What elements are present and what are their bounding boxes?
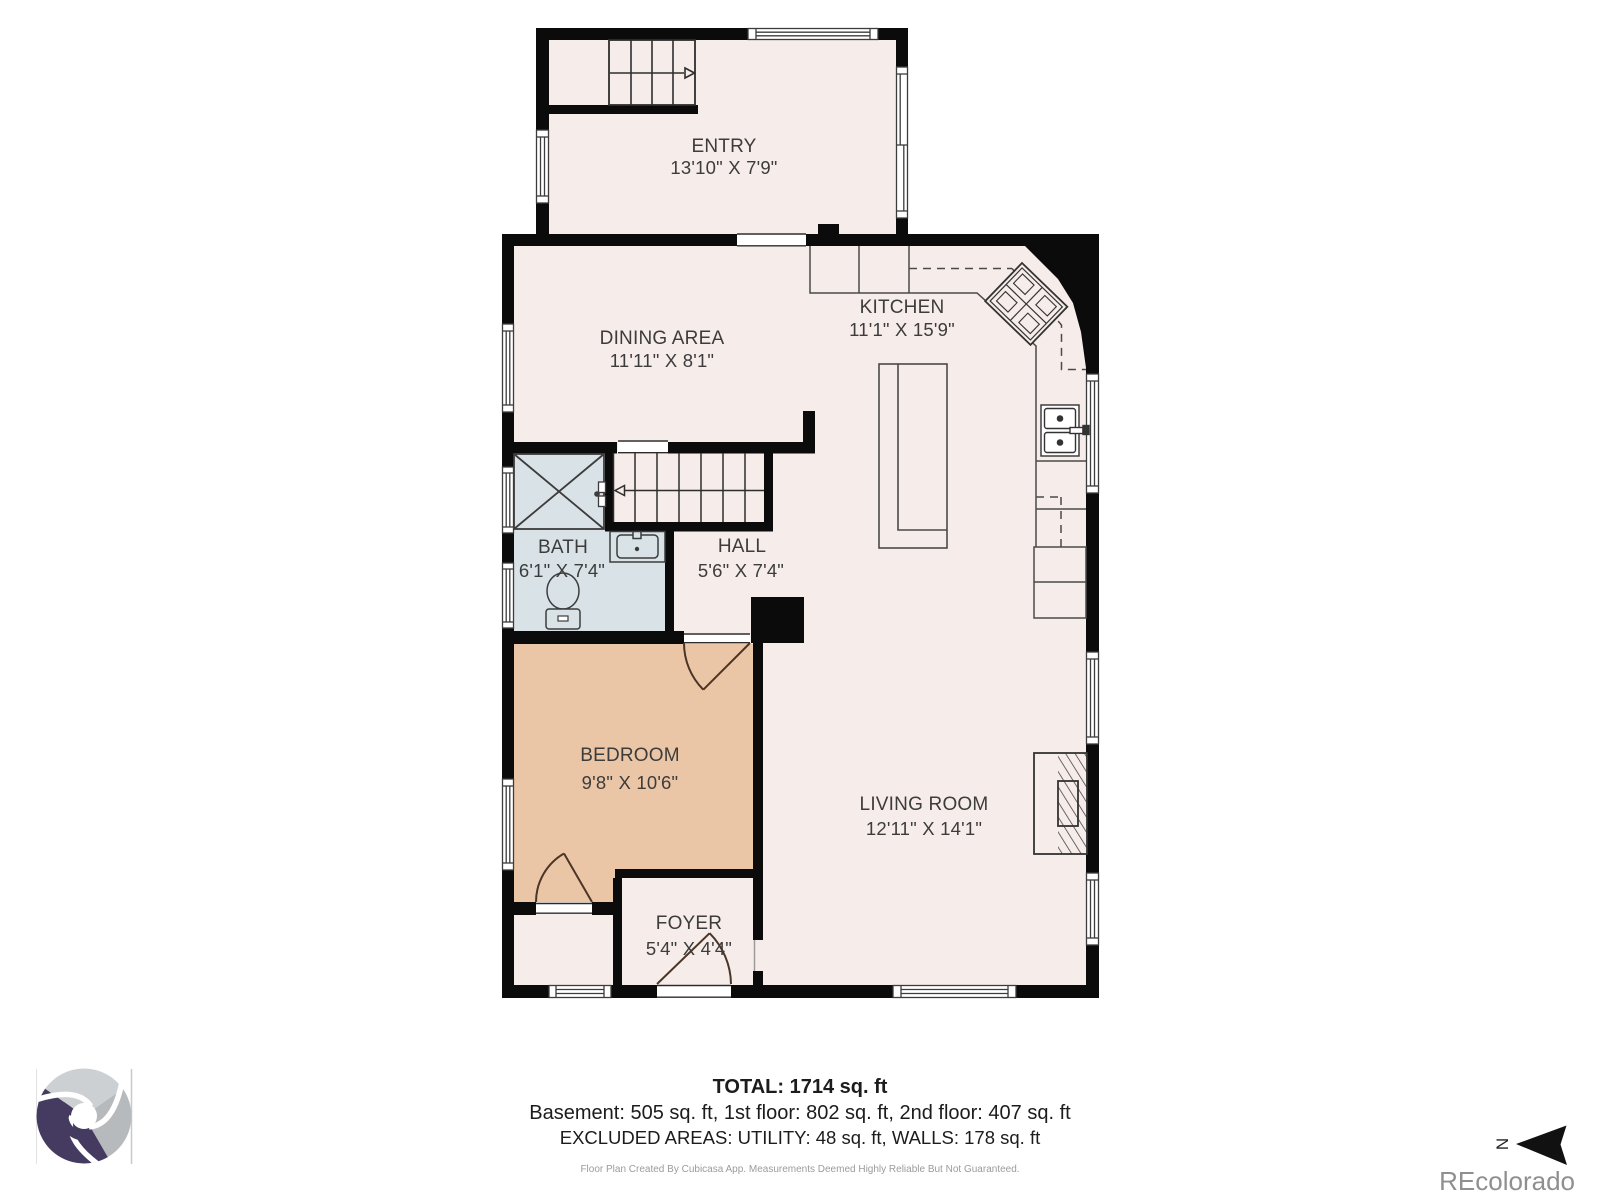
svg-text:5'4" X 4'4": 5'4" X 4'4" bbox=[646, 938, 732, 959]
svg-text:5'6" X 7'4": 5'6" X 7'4" bbox=[698, 560, 784, 581]
svg-text:BATH: BATH bbox=[538, 537, 588, 558]
svg-text:KITCHEN: KITCHEN bbox=[860, 297, 945, 318]
svg-text:N: N bbox=[1493, 1138, 1512, 1150]
svg-text:Floor Plan Created By Cubicasa: Floor Plan Created By Cubicasa App. Meas… bbox=[580, 1164, 1019, 1175]
svg-text:ENTRY: ENTRY bbox=[691, 136, 756, 157]
svg-text:FOYER: FOYER bbox=[656, 913, 722, 934]
svg-text:HALL: HALL bbox=[718, 536, 766, 557]
svg-text:LIVING ROOM: LIVING ROOM bbox=[860, 794, 989, 815]
svg-text:12'11" X 14'1": 12'11" X 14'1" bbox=[866, 818, 982, 839]
svg-text:6'1" X 7'4": 6'1" X 7'4" bbox=[519, 560, 605, 581]
svg-text:TOTAL: 1714 sq. ft: TOTAL: 1714 sq. ft bbox=[713, 1076, 888, 1098]
svg-text:9'8" X 10'6": 9'8" X 10'6" bbox=[582, 772, 679, 793]
svg-text:EXCLUDED AREAS: UTILITY: 48 sq: EXCLUDED AREAS: UTILITY: 48 sq. ft, WALL… bbox=[560, 1127, 1041, 1148]
svg-text:11'11" X 8'1": 11'11" X 8'1" bbox=[610, 350, 714, 371]
svg-text:BEDROOM: BEDROOM bbox=[580, 745, 680, 766]
svg-text:DINING AREA: DINING AREA bbox=[600, 328, 725, 349]
svg-text:Basement: 505 sq. ft, 1st floo: Basement: 505 sq. ft, 1st floor: 802 sq.… bbox=[529, 1102, 1071, 1124]
svg-text:13'10" X 7'9": 13'10" X 7'9" bbox=[670, 157, 777, 178]
svg-text:REcolorado: REcolorado bbox=[1439, 1166, 1575, 1196]
svg-text:11'1" X 15'9": 11'1" X 15'9" bbox=[849, 319, 955, 340]
